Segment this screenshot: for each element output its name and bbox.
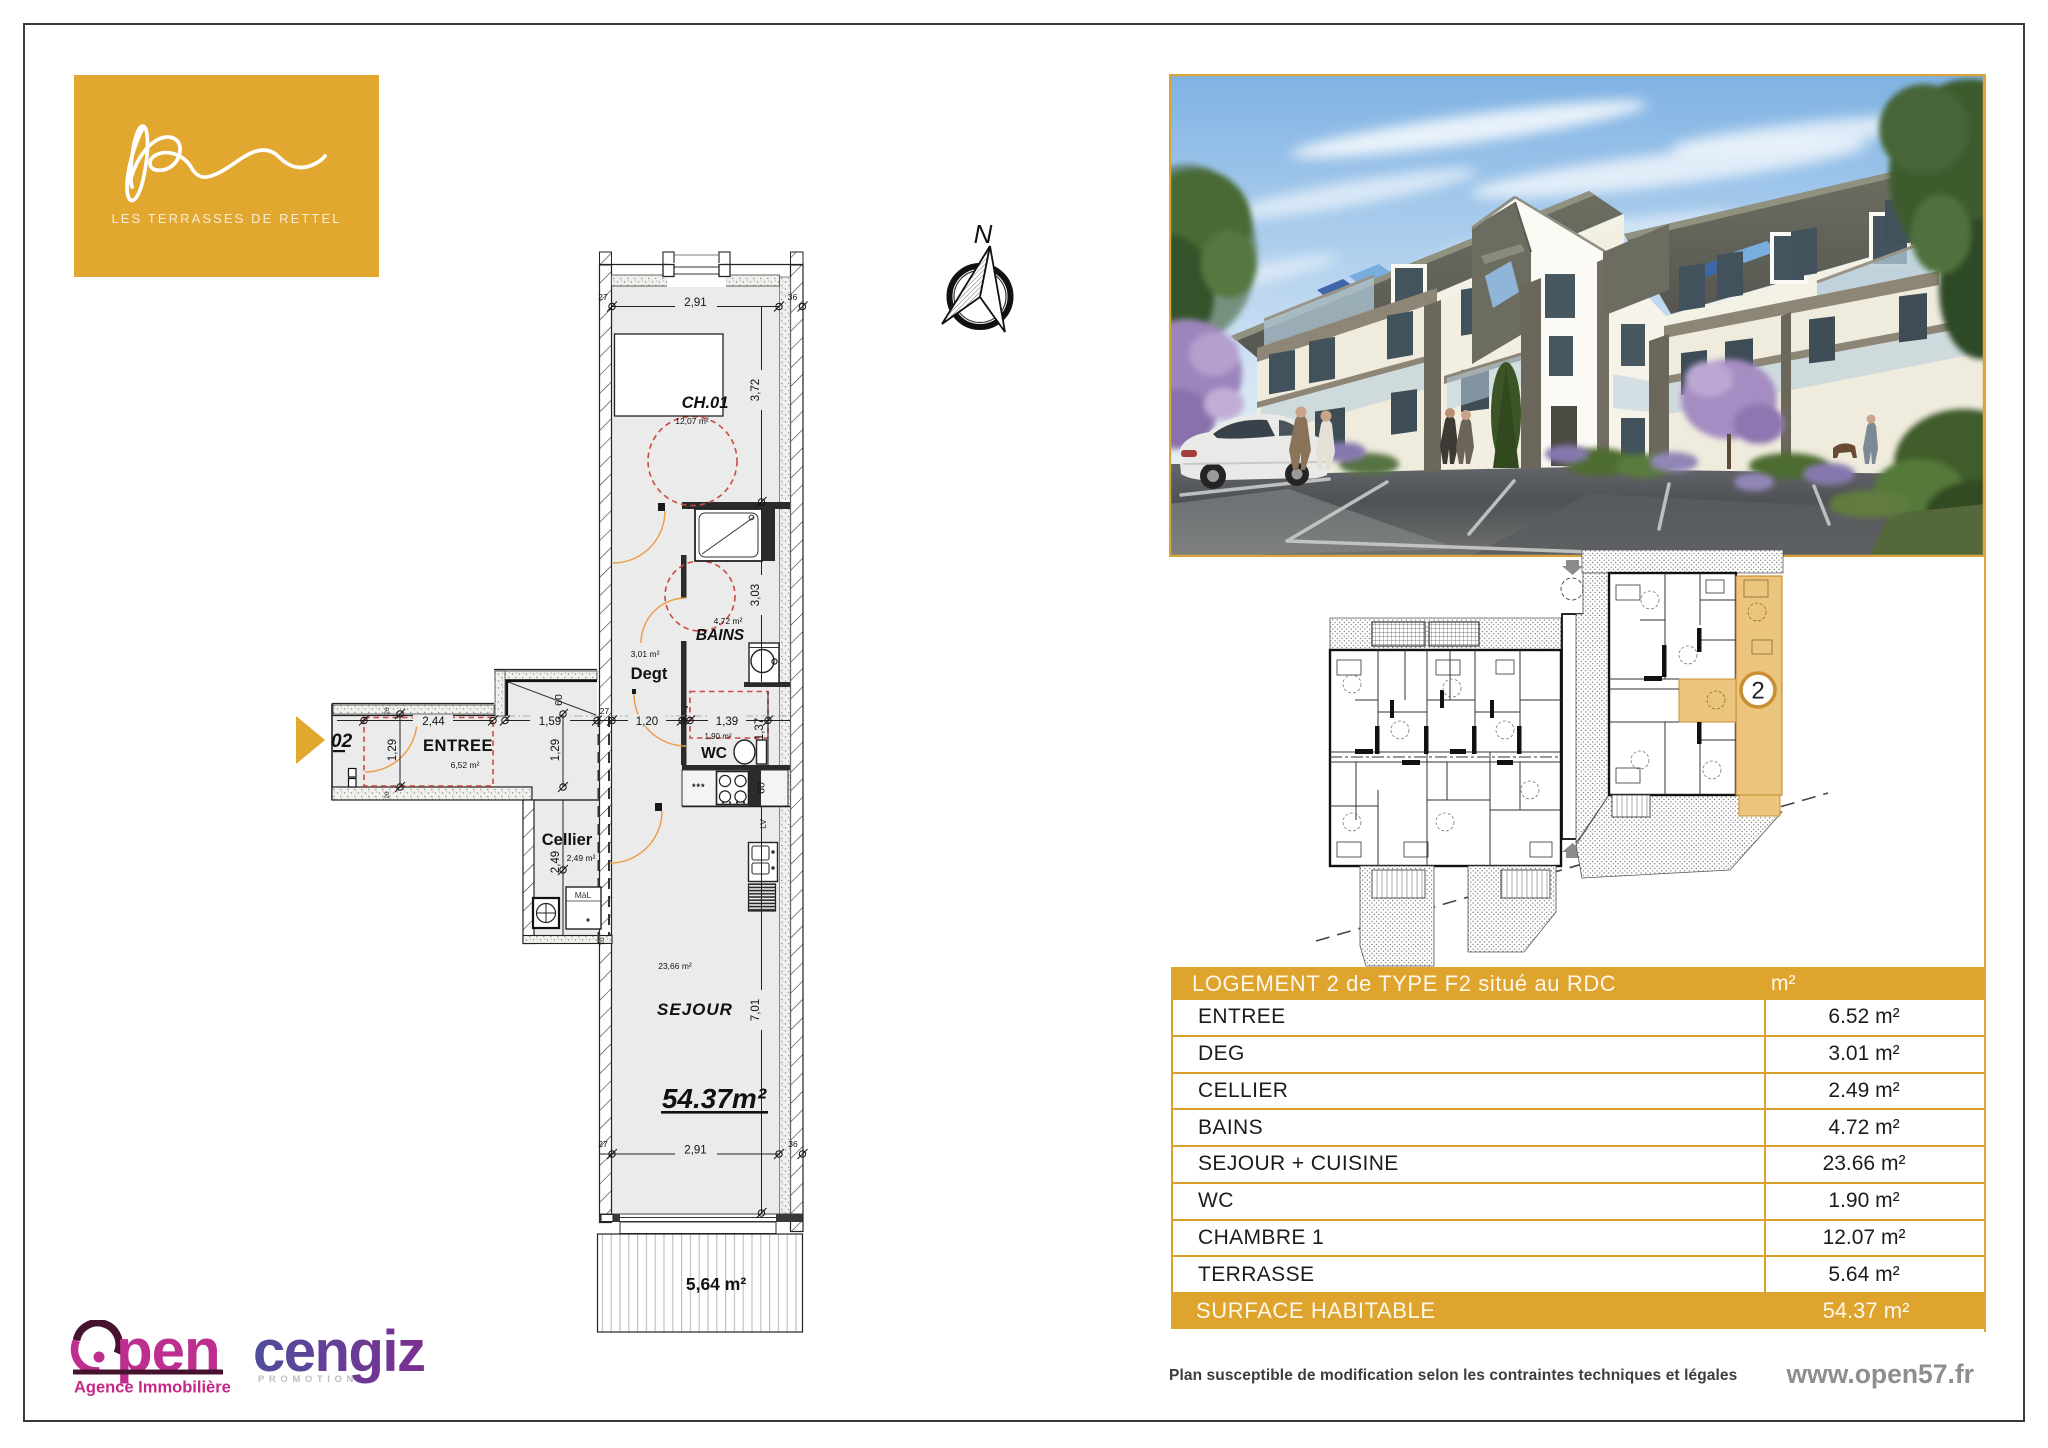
svg-text:2: 2 [1751,678,1764,705]
svg-text:60: 60 [553,694,565,706]
svg-text:20: 20 [599,937,606,945]
svg-text:PROMOTION: PROMOTION [258,1374,358,1385]
svg-text:1,37: 1,37 [754,718,766,740]
svg-text:27: 27 [600,706,610,716]
svg-text:3,03: 3,03 [750,584,762,606]
svg-text:3,01 m²: 3,01 m² [631,649,660,659]
svg-text:02: 02 [331,731,353,752]
svg-text:1,90 m²: 1,90 m² [704,732,731,741]
svg-text:LV: LV [758,819,768,829]
svg-text:54.37m²: 54.37m² [662,1083,767,1114]
svg-text:60: 60 [756,782,768,794]
svg-text:7: 7 [684,704,689,714]
svg-text:SEJOUR: SEJOUR [657,1000,733,1019]
svg-text:2,49 m²: 2,49 m² [567,853,596,863]
svg-text:1,29: 1,29 [387,739,399,761]
svg-text:27: 27 [598,292,608,302]
svg-text:BAINS: BAINS [696,627,745,644]
svg-text:20: 20 [384,791,391,799]
svg-text:3,72: 3,72 [750,379,762,401]
svg-text:4,72 m²: 4,72 m² [714,616,743,626]
svg-text:1,20: 1,20 [636,716,658,728]
svg-text:Cellier: Cellier [542,831,593,849]
svg-text:2,44: 2,44 [422,716,445,728]
svg-text:1,29: 1,29 [550,739,562,761]
svg-text:23,66 m²: 23,66 m² [658,961,692,971]
svg-text:CH.01: CH.01 [682,394,729,412]
svg-text:Agence Immobilière: Agence Immobilière [74,1379,231,1397]
svg-text:36: 36 [788,1139,798,1149]
svg-text:1,39: 1,39 [716,716,738,728]
svg-text:5,64 m²: 5,64 m² [686,1274,746,1294]
svg-text:2,91: 2,91 [684,1145,706,1157]
svg-text:WC: WC [701,745,727,762]
svg-text:1,59: 1,59 [539,716,561,728]
svg-text:N: N [974,219,993,249]
svg-text:2,91: 2,91 [684,297,706,309]
svg-text:***: *** [692,782,706,792]
svg-text:20: 20 [384,707,391,715]
svg-text:Degt: Degt [631,665,668,683]
svg-text:7,01: 7,01 [750,999,762,1021]
svg-text:36: 36 [788,292,798,302]
svg-text:ENTREE: ENTREE [423,737,493,755]
svg-text:MàL: MàL [575,890,592,900]
svg-text:6,52 m²: 6,52 m² [451,760,480,770]
svg-text:12,07 m²: 12,07 m² [675,416,709,426]
svg-text:27: 27 [598,1139,608,1149]
svg-text:2,49: 2,49 [550,851,562,873]
